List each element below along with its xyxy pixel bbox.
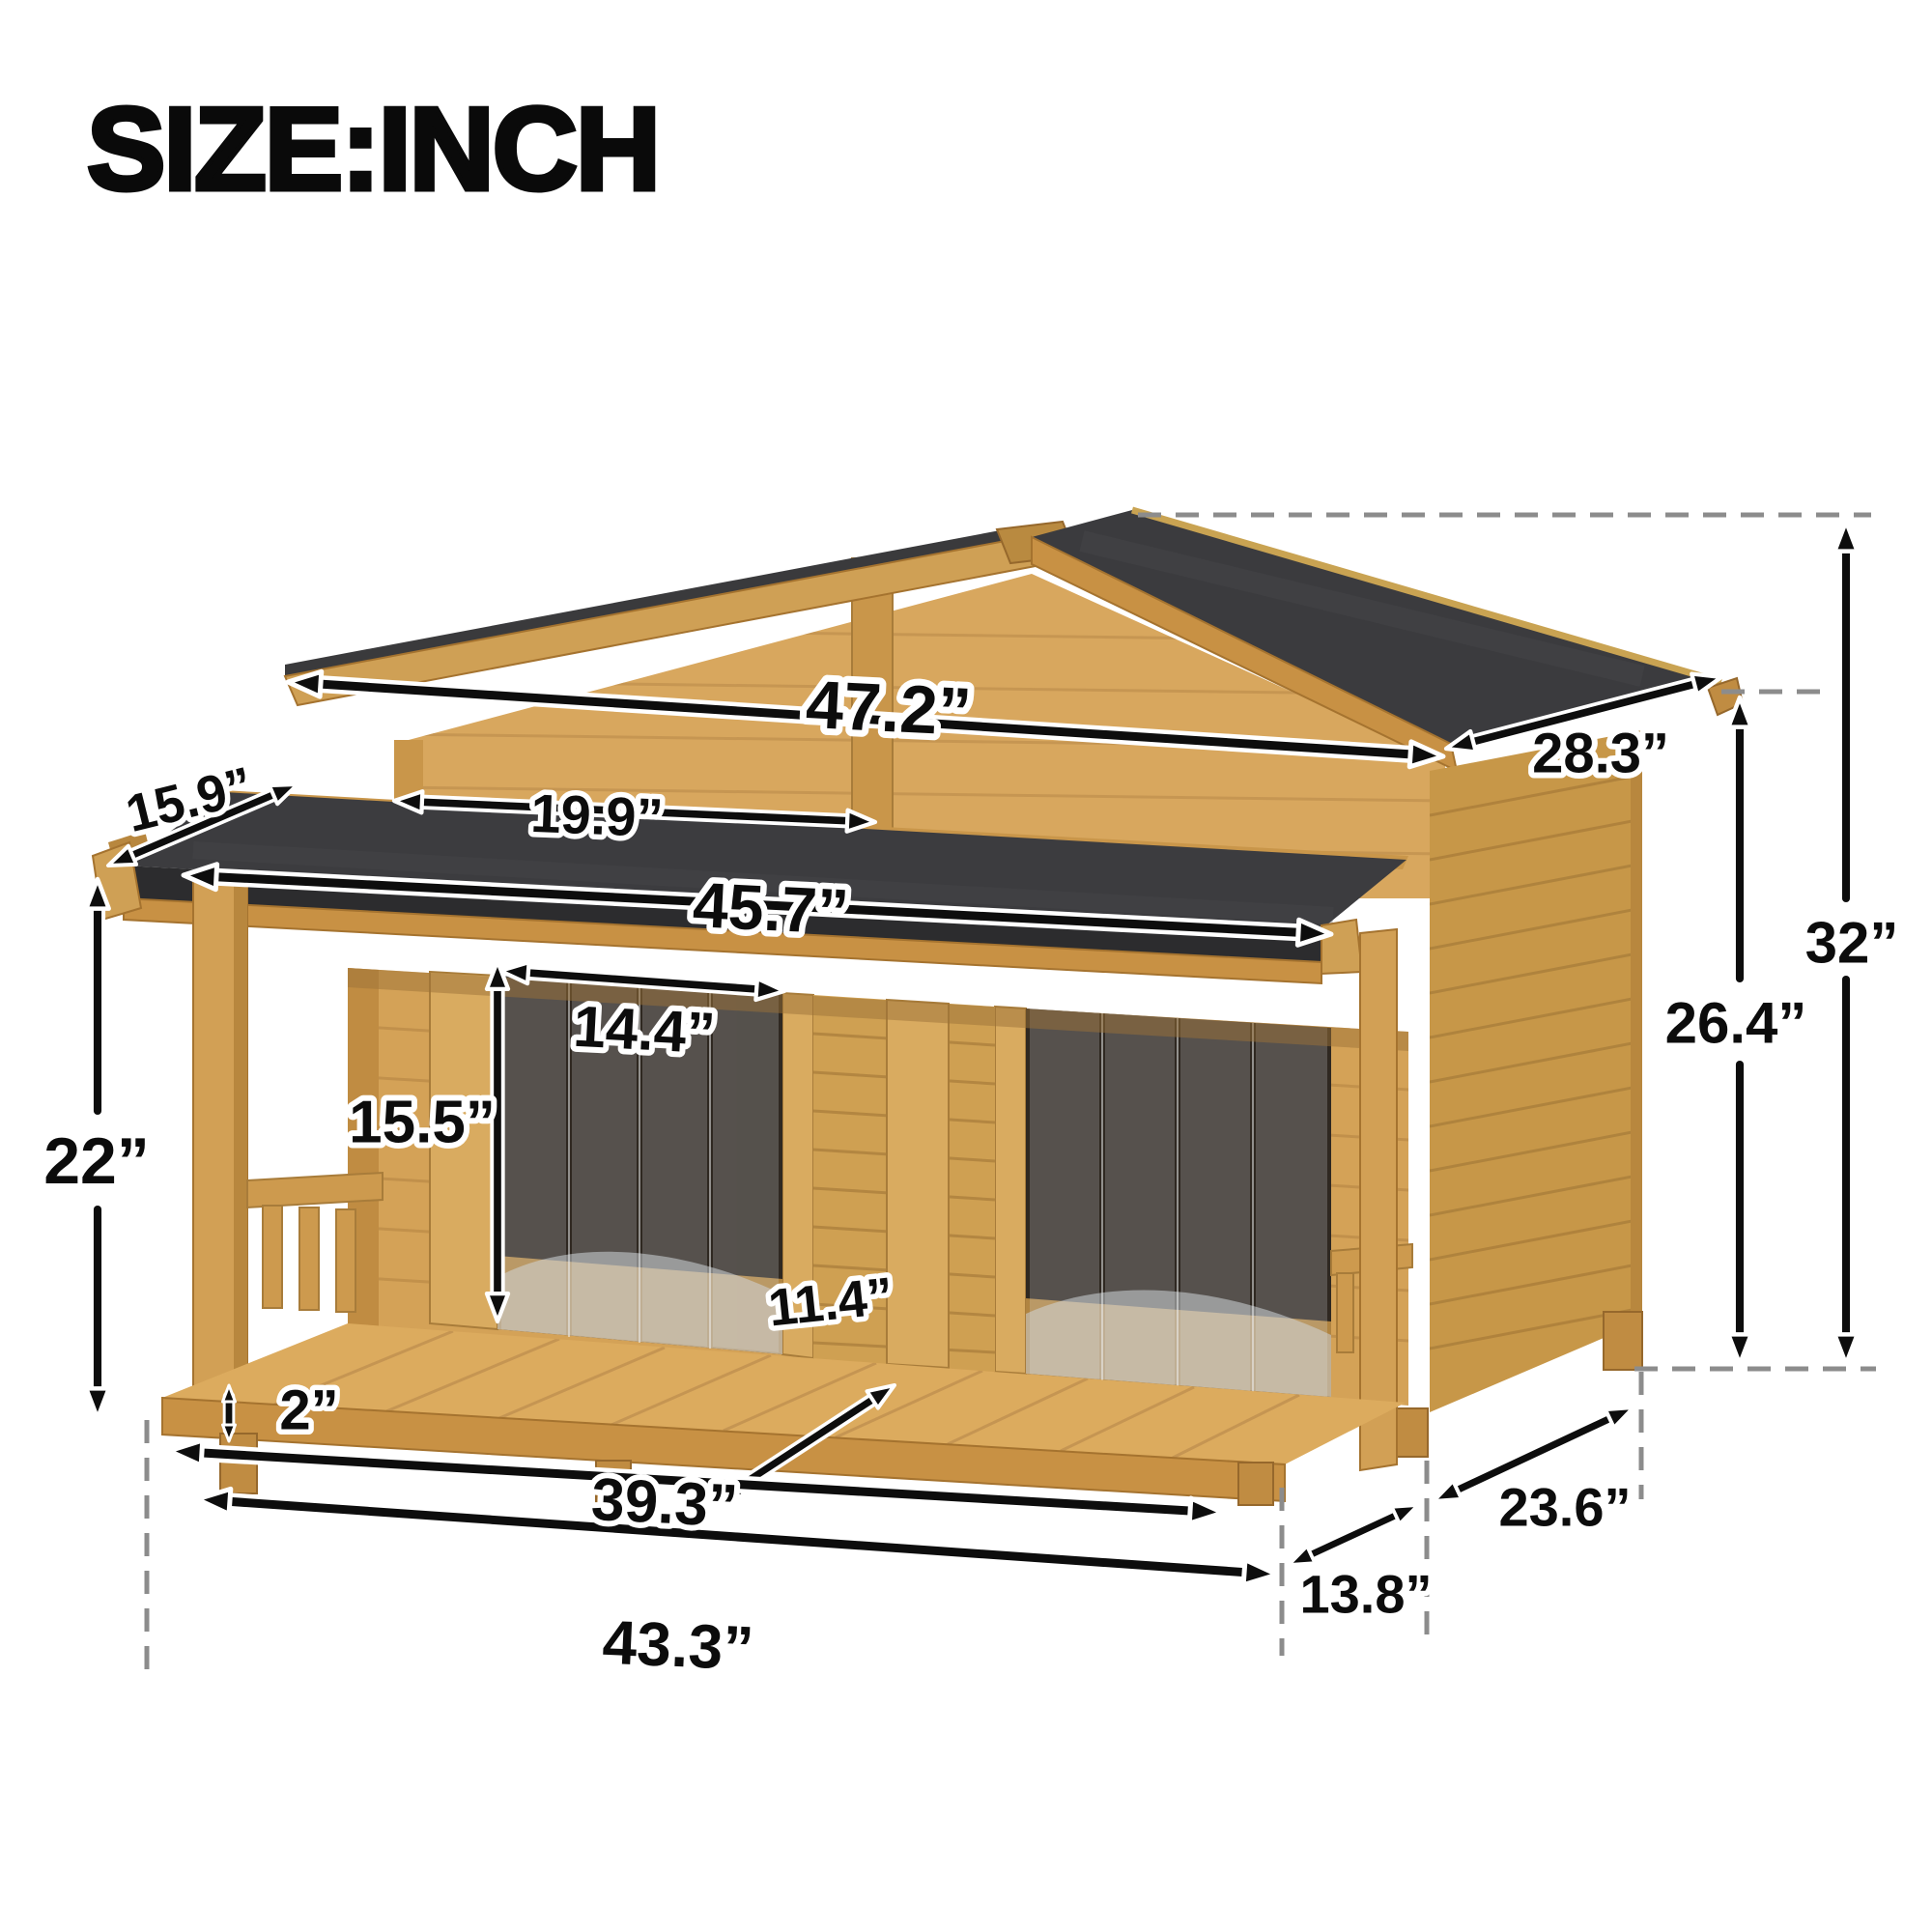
arrowhead: [169, 1440, 203, 1465]
arrowhead: [487, 961, 508, 989]
door-right: [1026, 1009, 1331, 1397]
dimension-line: [1304, 1513, 1402, 1558]
dim-label-total-height: 32”: [1805, 911, 1899, 976]
dim-label-body-height: 26.4”: [1665, 991, 1807, 1056]
arrow-body-height-top: [1728, 697, 1750, 979]
arrowhead: [1834, 1334, 1857, 1364]
right-corner-post: [1360, 929, 1397, 1470]
dim-label-porch-floor-width: 39.3”: [590, 1466, 740, 1540]
dim-label-porch-height: 22”: [43, 1124, 150, 1198]
arrowhead: [1728, 1334, 1750, 1364]
arrow-total-height-top: [1834, 522, 1857, 898]
dog-house-diagram-svg: 47.2” 28.3” 15.9” 19.9” 45.7” 14.4” 15.5…: [0, 0, 1932, 1932]
arrow-porch-depth: [1289, 1505, 1418, 1565]
dim-label-roof-width: 47.2”: [805, 667, 974, 750]
dim-label-porch-depth: 13.8”: [1300, 1564, 1433, 1625]
dim-label-door-width: 14.4”: [572, 994, 717, 1066]
dim-label-house-depth: 23.6”: [1499, 1477, 1632, 1538]
arrowhead: [197, 1489, 231, 1514]
arrow-porch-height-bottom: [86, 1209, 108, 1418]
arrowhead: [1189, 1498, 1223, 1523]
porch-leg-right: [1238, 1463, 1273, 1505]
arrow-floor-thickness: [223, 1385, 236, 1441]
rear-right-leg: [1604, 1312, 1642, 1370]
dim-label-floor-thickness: 2”: [279, 1379, 338, 1442]
arrowhead: [86, 1388, 108, 1418]
arrow-total-height-bottom: [1834, 980, 1857, 1364]
arrow-body-height-bottom: [1728, 1065, 1750, 1364]
dim-label-gable-section-width: 19.9”: [529, 782, 664, 848]
arrowhead: [1243, 1560, 1277, 1585]
dim-label-roof-depth: 28.3”: [1532, 723, 1669, 785]
house-illustration: [93, 510, 1743, 1517]
awning-right-rafter: [1321, 920, 1362, 974]
dim-label-awning-width: 45.7”: [692, 868, 851, 948]
dim-label-base-width: 43.3”: [601, 1607, 755, 1684]
dim-label-door-height: 15.5”: [349, 1090, 496, 1156]
arrowhead: [1834, 522, 1857, 552]
dog-house-dimension-diagram: SIZE:INCH: [0, 0, 1932, 1932]
